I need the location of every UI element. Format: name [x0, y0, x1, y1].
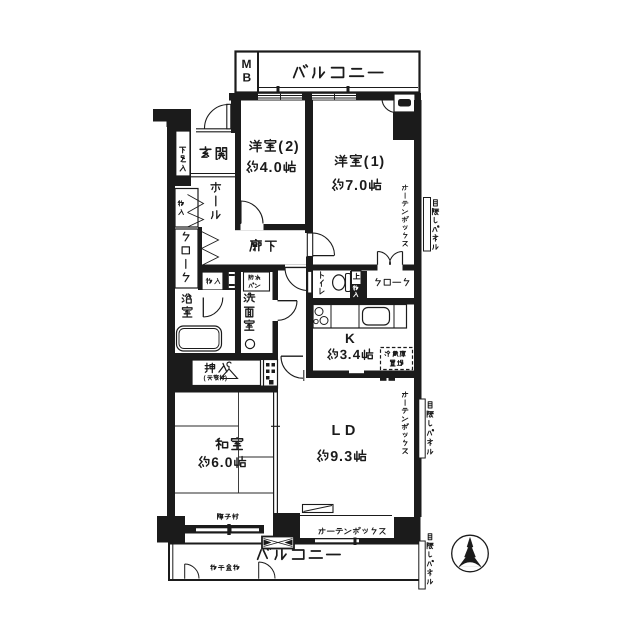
- svg-text:7: 7: [345, 178, 353, 194]
- svg-text:1: 1: [371, 154, 379, 170]
- svg-text:0: 0: [274, 160, 282, 176]
- svg-text:): ): [379, 154, 384, 170]
- svg-text:2: 2: [285, 139, 293, 155]
- svg-text:6: 6: [211, 455, 219, 470]
- svg-text:0: 0: [359, 178, 367, 194]
- svg-text:(: (: [278, 139, 283, 155]
- svg-text:4: 4: [260, 160, 268, 176]
- svg-text:M: M: [242, 57, 252, 71]
- svg-text:(: (: [364, 154, 369, 170]
- svg-text:): ): [294, 139, 299, 155]
- svg-text:.: .: [339, 449, 343, 465]
- svg-text:3: 3: [340, 347, 347, 362]
- svg-text:0: 0: [225, 455, 233, 470]
- svg-text:K: K: [345, 331, 355, 346]
- svg-text:9: 9: [330, 449, 338, 465]
- svg-text:.: .: [348, 347, 352, 362]
- svg-text:B: B: [243, 71, 252, 85]
- svg-text:.: .: [220, 455, 224, 470]
- svg-text:LD: LD: [332, 423, 360, 439]
- svg-text:3: 3: [344, 449, 352, 465]
- svg-text:4: 4: [353, 347, 361, 362]
- svg-text:.: .: [269, 160, 273, 176]
- svg-text:.: .: [354, 178, 358, 194]
